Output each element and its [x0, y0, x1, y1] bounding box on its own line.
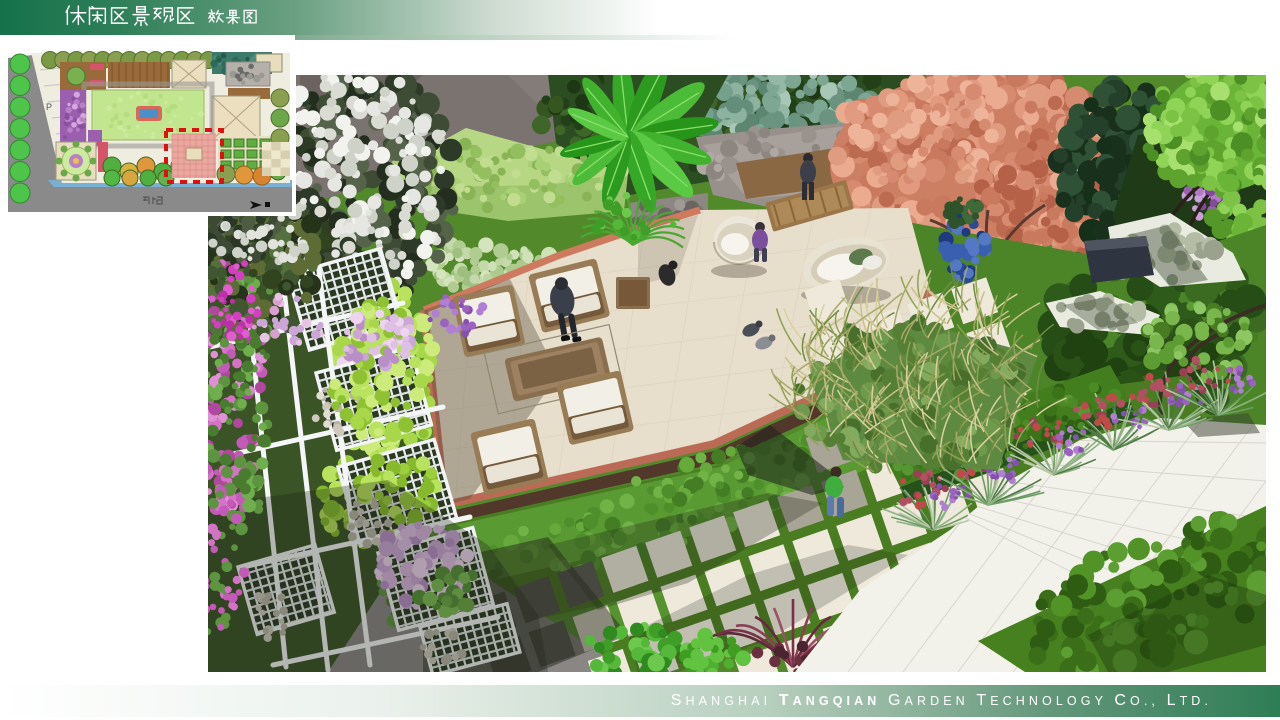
- svg-text:P: P: [46, 102, 52, 112]
